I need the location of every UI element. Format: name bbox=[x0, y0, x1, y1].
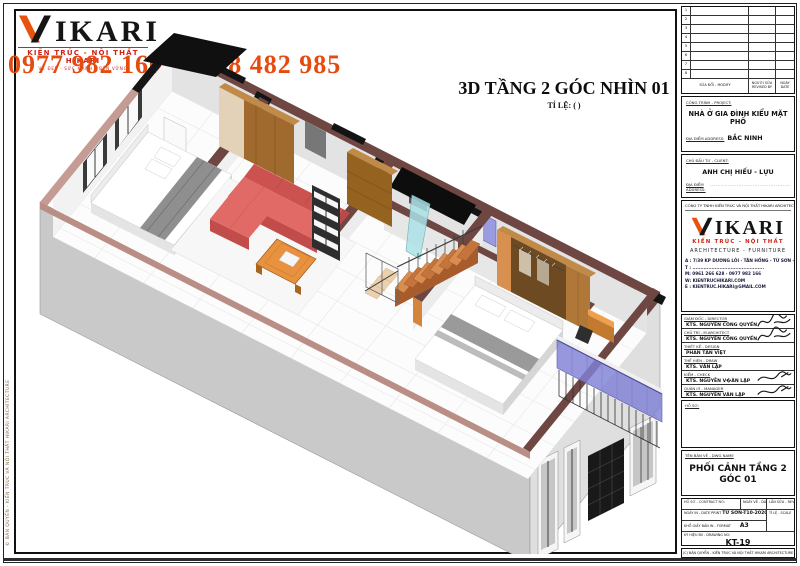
signature-row: CHỦ TRÌ - M.ARCHITECT KTS. NGUYỄN CÔNG Q… bbox=[682, 329, 794, 343]
revised-by-header: NGƯỜI SỬA REVISED BY bbox=[749, 79, 776, 93]
signature-icon bbox=[756, 326, 792, 344]
side-copyright-note: © BẢN QUYỀN - KIẾN TRÚC VÀ NỘI THẤT HIKA… bbox=[6, 331, 11, 546]
project-address: BẮC NINH bbox=[727, 134, 762, 142]
sheet-bottom-edge bbox=[3, 558, 797, 561]
view-title: 3D TẦNG 2 GÓC NHÌN 01 bbox=[438, 78, 690, 99]
project-address-label: ĐỊA ĐIỂM ADDRESS: bbox=[686, 136, 724, 141]
meta-grid: HỒ SƠ - CONTRACT NO: NGÀY VẼ - DATE LẦN … bbox=[681, 498, 795, 546]
dossier-label: HỒ SƠ: bbox=[685, 403, 791, 408]
title-block: 1 2 3 4 5 6 7 8 SỬA ĐỔI - MODIFY NGƯỜI S… bbox=[681, 6, 795, 560]
drawing-name: PHỐI CẢNH TẦNG 2 GÓC 01 bbox=[685, 464, 791, 487]
revision-number: 5 bbox=[682, 43, 691, 52]
scale-label: TỈ LỆ - SCALE bbox=[767, 510, 794, 532]
print-date: NGÀY IN - DATE PRINT TỪ SƠN-T10-2020 bbox=[682, 510, 767, 521]
date-header: NGÀY DATE bbox=[776, 79, 794, 93]
company-fullname: CÔNG TY TNHH KIẾN TRÚC VÀ NỘI THẤT HIKAR… bbox=[685, 203, 791, 211]
revision-number: 1 bbox=[682, 7, 691, 16]
company-brand-sub: KIẾN TRÚC - NỘI THẤT bbox=[685, 239, 791, 245]
revision-number: 7 bbox=[682, 61, 691, 70]
signature-icon bbox=[756, 382, 792, 398]
project-box: CÔNG TRÌNH - PROJECT: NHÀ Ở GIA ĐÌNH KIỂ… bbox=[681, 96, 795, 152]
company-fields: ARCHITECTURE - FURNITURE bbox=[685, 248, 791, 254]
view-scale: TỈ LỆ: ( ) bbox=[438, 101, 690, 110]
client-address-label: ĐỊA ĐIỂM ADDRESS: bbox=[686, 182, 707, 192]
client-address: ........................................… bbox=[710, 182, 790, 187]
revision-number: 4 bbox=[682, 34, 691, 43]
titleblock-copyright: (C) BẢN QUYỀN - KIẾN TRÚC VÀ NỘI THẤT HI… bbox=[681, 548, 795, 558]
drawing-sheet: IKARI KIẾN TRÚC - NỘI THẤT HIKARI VẺ ĐẸP… bbox=[0, 0, 800, 566]
client-box: CHỦ ĐẦU TƯ - CLIENT: ANH CHỊ HIẾU - LỰU … bbox=[681, 154, 795, 198]
drawing-number: KÝ HIỆU BV - DRAWING NO: KT-19 bbox=[682, 532, 794, 545]
revision-number: 2 bbox=[682, 16, 691, 25]
signature-block: GIÁM ĐỐC - DIRECTOR KTS. NGUYỄN CÔNG QUY… bbox=[681, 314, 795, 398]
door-frame bbox=[413, 297, 422, 327]
contract-label: HỒ SƠ - CONTRACT NO: bbox=[682, 499, 741, 510]
hikari-logo-icon bbox=[691, 216, 713, 237]
company-brand: IKARI bbox=[715, 220, 785, 237]
company-email: E : KIENTRUC.HIKARI@GMAIL.COM bbox=[685, 284, 791, 291]
drawing-name-box: TÊN BẢN VẼ - DWG NAME PHỐI CẢNH TẦNG 2 G… bbox=[681, 450, 795, 496]
signature-row: THIẾT KẾ - DESIGN PHAN TẤN VIỆT bbox=[682, 343, 794, 357]
revision-number: 6 bbox=[682, 52, 691, 61]
project-label: CÔNG TRÌNH - PROJECT: bbox=[686, 100, 790, 105]
client-name: ANH CHỊ HIẾU - LỰU bbox=[686, 168, 790, 176]
revision-number: 3 bbox=[682, 25, 691, 34]
revision-table: 1 2 3 4 5 6 7 8 SỬA ĐỔI - MODIFY NGƯỜI S… bbox=[681, 6, 795, 94]
project-name: NHÀ Ở GIA ĐÌNH KIỂU MẶT PHỐ bbox=[686, 111, 790, 127]
client-label: CHỦ ĐẦU TƯ - CLIENT: bbox=[686, 158, 790, 163]
company-box: CÔNG TY TNHH KIẾN TRÚC VÀ NỘI THẤT HIKAR… bbox=[681, 200, 795, 312]
rev-label: LẦN SỬA - REV bbox=[767, 499, 794, 510]
signature-row: QUẢN LÝ - MANAGER KTS. NGUYỄN VĂN LẬP bbox=[682, 385, 794, 398]
modify-header: SỬA ĐỔI - MODIFY bbox=[682, 79, 749, 93]
drawing-name-label: TÊN BẢN VẼ - DWG NAME bbox=[685, 453, 791, 458]
date-label: NGÀY VẼ - DATE bbox=[741, 499, 767, 510]
wardrobe-side bbox=[497, 230, 511, 292]
company-address: A : 7/39 KP DƯƠNG LÔI - TÂN HỒNG - TỪ SƠ… bbox=[685, 258, 791, 265]
paper-format: KHỔ GIẤY BẢN IN - FORMAT A3 bbox=[682, 521, 767, 532]
dossier-box: HỒ SƠ: bbox=[681, 400, 795, 448]
